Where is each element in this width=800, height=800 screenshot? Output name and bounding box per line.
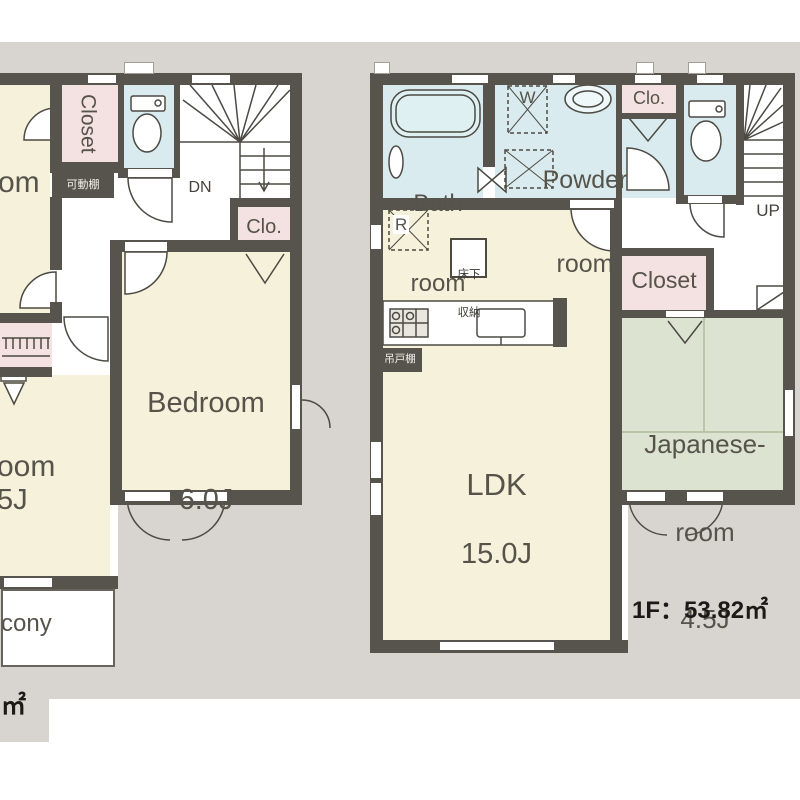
window-gap [292,385,300,429]
window-gap [697,75,723,83]
door-arc-2f-bottom-left-room [64,317,108,361]
wall [50,302,62,313]
door-arc-2f-toilet [128,178,172,222]
window-gap [440,642,554,650]
window-gap [4,578,52,587]
wall [616,310,795,318]
hanger-pipe-symbol [2,338,50,356]
toilet-icon-1f [689,101,725,161]
wall [0,367,52,377]
window-sill [636,62,654,74]
wall [290,73,302,505]
window-gap [371,225,381,249]
wall [706,248,714,310]
door-gap [125,242,167,251]
room-bottom-left-size: 5J [0,484,28,516]
wall [736,85,744,205]
underfloor-storage-label: 床下 収納 [452,243,486,346]
closet-door-triangle-2f [4,383,24,404]
refrigerator-label: R [393,215,409,234]
window-gap [553,75,575,83]
movable-shelf-plate: 可動棚 [52,173,114,198]
door-arc-1f-toilet [690,203,724,237]
wall [0,73,302,85]
window-arc-2f-right-wall [302,400,330,428]
window-sill [374,62,390,74]
stairs-down-label: DN [180,179,220,197]
bifold-door-bath [478,168,506,192]
door-arc-2f-bedroom [125,252,167,294]
folding-door-2f-clo [246,254,284,283]
window-sill [688,62,706,74]
door-gap [666,311,704,317]
toilet-icon-2f [131,96,165,152]
wall [676,85,684,195]
wall [174,85,180,168]
folding-door-1f-closet [668,321,702,343]
wall [483,85,495,167]
wall [370,73,795,85]
stairs-1f [744,85,783,196]
movable-shelf-label: 可動棚 [67,179,100,191]
balcony-label: cony [1,611,52,638]
wall [232,198,290,207]
wall [50,162,124,173]
wall [50,197,62,270]
floor-area-2f-fragment: ㎡ [1,692,26,720]
stairs-up-label: UP [748,201,788,220]
door-gap [128,169,172,177]
ldk-label: LDK 15.0J [383,432,610,607]
room-bottom-left-label: oom [0,450,55,484]
window-gap [371,442,381,478]
wall [0,313,62,323]
door-gap [688,196,722,203]
room-top-left-label: om [0,166,40,200]
clo-2f-label: Clo. [238,216,290,238]
window-gap [371,483,381,515]
closet-2f-label: Closet [58,85,118,162]
hanging-cabinet-label: 吊戸棚 [384,354,416,366]
powder-room-label: Powder room [535,110,635,334]
wall [110,240,122,505]
washer-label: W [508,88,547,107]
bathtub-icon [391,90,480,137]
closet-1f-label: Closet [622,268,706,294]
window-gap [192,75,230,83]
wall [118,85,124,162]
floor-area-1f-label: 1F：53.82㎡ [632,598,800,625]
window-gap [452,75,488,83]
clo-1f-label: Clo. [622,88,676,108]
japanese-room-label: Japanese- room 4.5J [622,372,788,692]
window-sill [124,62,154,74]
sink-icon [565,85,611,113]
floor-plan-canvas: 可動棚 吊戸棚 om Closet DN Clo. Bedroom 6.0J o… [0,0,800,800]
bedroom-2f-label: Bedroom 6.0J [122,322,290,582]
window-gap [88,75,116,83]
window-gap [635,75,661,83]
